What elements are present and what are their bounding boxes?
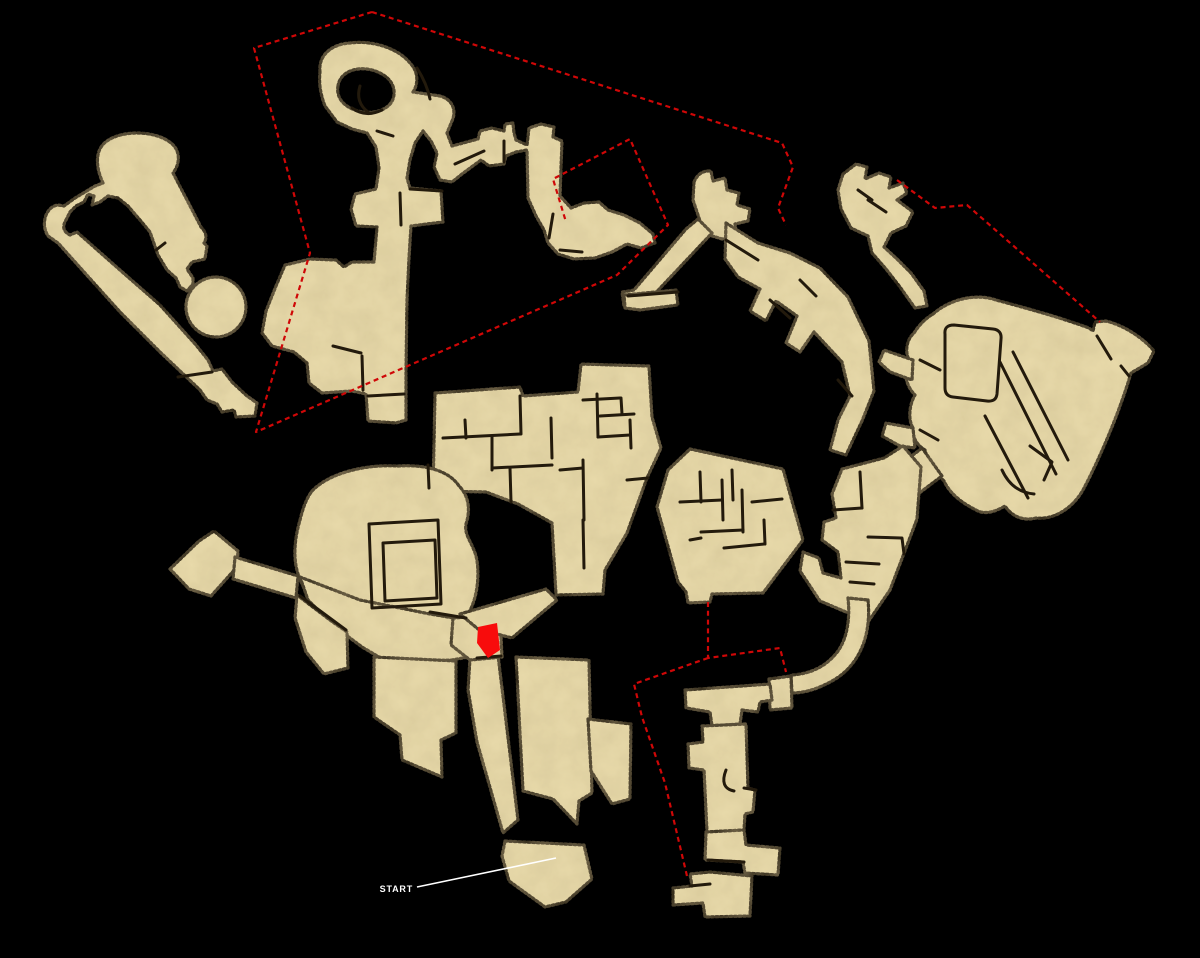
map-region-south-stair-wall	[708, 860, 744, 862]
map-region-central-keep-wall	[560, 468, 583, 470]
map-region-north-figure-wall	[368, 394, 404, 396]
map-region-central-keep-wall	[510, 468, 511, 502]
map-region-north-figure-wall	[410, 189, 442, 191]
map-region-east-chain-wall	[850, 582, 874, 584]
map-region-central-keep-wall	[598, 435, 630, 437]
map-region-central-keep-wall	[583, 520, 584, 568]
map-canvas[interactable]: START	[0, 0, 1200, 958]
map-region-great-hall-west-wall	[428, 465, 429, 488]
map-region-east-bastion-wall	[722, 480, 723, 520]
map-region-central-keep-wall	[520, 396, 521, 434]
map-region-central-keep-wall	[551, 418, 552, 458]
map-region-northwest-loop	[186, 277, 246, 337]
start-label: START	[380, 884, 413, 894]
map-region-central-keep-wall	[621, 398, 622, 414]
map-region-north-figure-wall	[400, 193, 401, 225]
map-region-central-keep-wall	[465, 420, 466, 438]
map-region-east-chain-wall	[868, 537, 901, 538]
map-region-east-chain-wall	[860, 472, 862, 508]
map-region-central-keep-wall	[630, 420, 631, 448]
map-region-east-bastion-wall	[701, 530, 743, 532]
map-region-east-bastion-wall	[764, 520, 765, 544]
map-region-east-chain-wall	[902, 538, 904, 554]
map-region-north-figure-wall	[362, 356, 363, 390]
map-region-east-bastion-wall	[680, 500, 722, 502]
game-map-screen: START	[0, 0, 1200, 958]
map-region-east-bastion-wall	[742, 490, 743, 532]
map-region-east-bastion-wall	[690, 538, 701, 540]
map-region-east-bastion-wall	[700, 472, 701, 502]
map-region-central-keep-wall	[583, 398, 620, 400]
map-region-central-keep-wall	[600, 414, 634, 416]
map-region-central-keep-wall	[627, 478, 648, 480]
map-region-east-chain-wall	[833, 508, 862, 510]
map-region-east-bastion-wall	[732, 470, 733, 500]
map-region-south-stair-wall	[744, 788, 756, 790]
map-region-south-stair-wall	[690, 884, 710, 886]
map-region-east-chain-wall	[846, 562, 879, 564]
map-region-north-figure-wall	[560, 250, 582, 252]
